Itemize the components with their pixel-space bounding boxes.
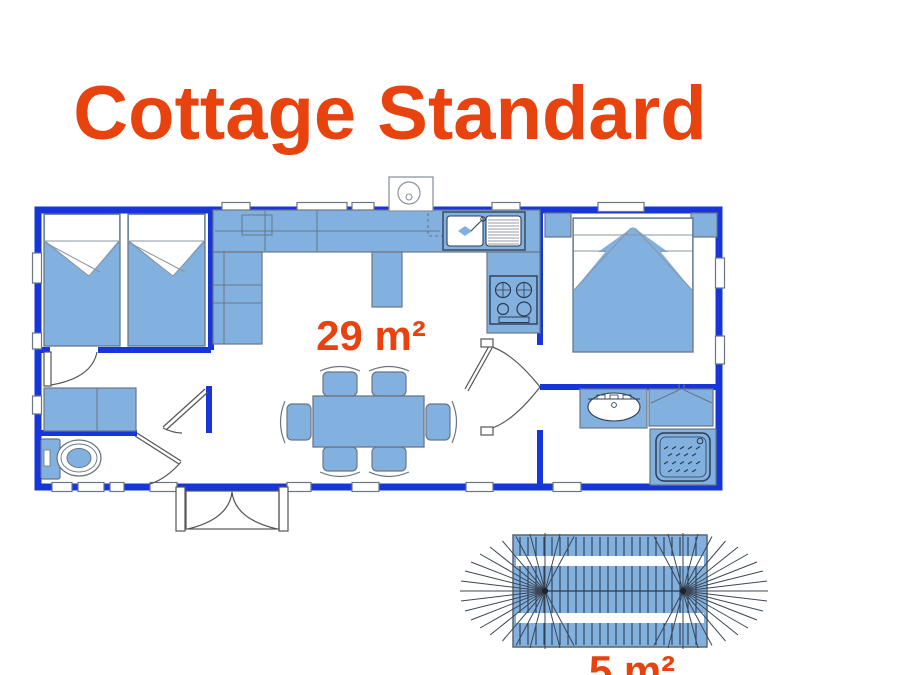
dining-table-icon [313,396,424,447]
toilet-icon [41,439,101,479]
window-icon [716,336,725,364]
nightstand-icon [691,213,717,237]
door-arc-icon [135,433,181,484]
window-icon [553,483,581,492]
window-icon [466,483,493,492]
door-arc-icon [44,352,97,386]
chair-icon [281,401,312,443]
washbasin-icon [580,389,647,428]
entrance-double-door-icon [176,487,288,531]
door-arc-icon [163,389,208,433]
window-icon [598,203,644,212]
page: Cottage Standard [0,0,900,675]
window-icon [78,483,104,492]
chair-icon [426,401,457,443]
window-icon [110,483,124,492]
window-icon [52,483,72,492]
chair-icon [320,447,360,477]
water-heater-icon [389,177,433,211]
shower-icon [650,429,716,485]
terrace-area-label: 5 m² [482,650,782,675]
double-bed-icon [573,218,693,352]
chair-icon [320,367,360,397]
window-icon [33,253,42,283]
nightstand-icon [545,213,571,237]
chair-icon [369,447,409,477]
twin-bed-icon [128,214,205,346]
double-bed-area [545,213,717,352]
wardrobe-icon [649,384,713,426]
interior-area-label: 29 m² [221,315,521,357]
terrace-awning-icon [460,533,768,649]
window-icon [287,483,311,492]
window-icon [33,333,42,349]
window-icon [150,483,177,492]
door-arc-icon [481,387,540,435]
window-icon [33,396,42,414]
sink-icon [443,212,525,250]
window-icon [352,483,379,492]
window-icon [716,258,725,288]
dining-set [281,367,457,477]
wardrobe-icon [44,388,136,431]
chair-icon [369,367,409,397]
twin-beds [44,214,205,346]
twin-bed-icon [44,214,120,346]
